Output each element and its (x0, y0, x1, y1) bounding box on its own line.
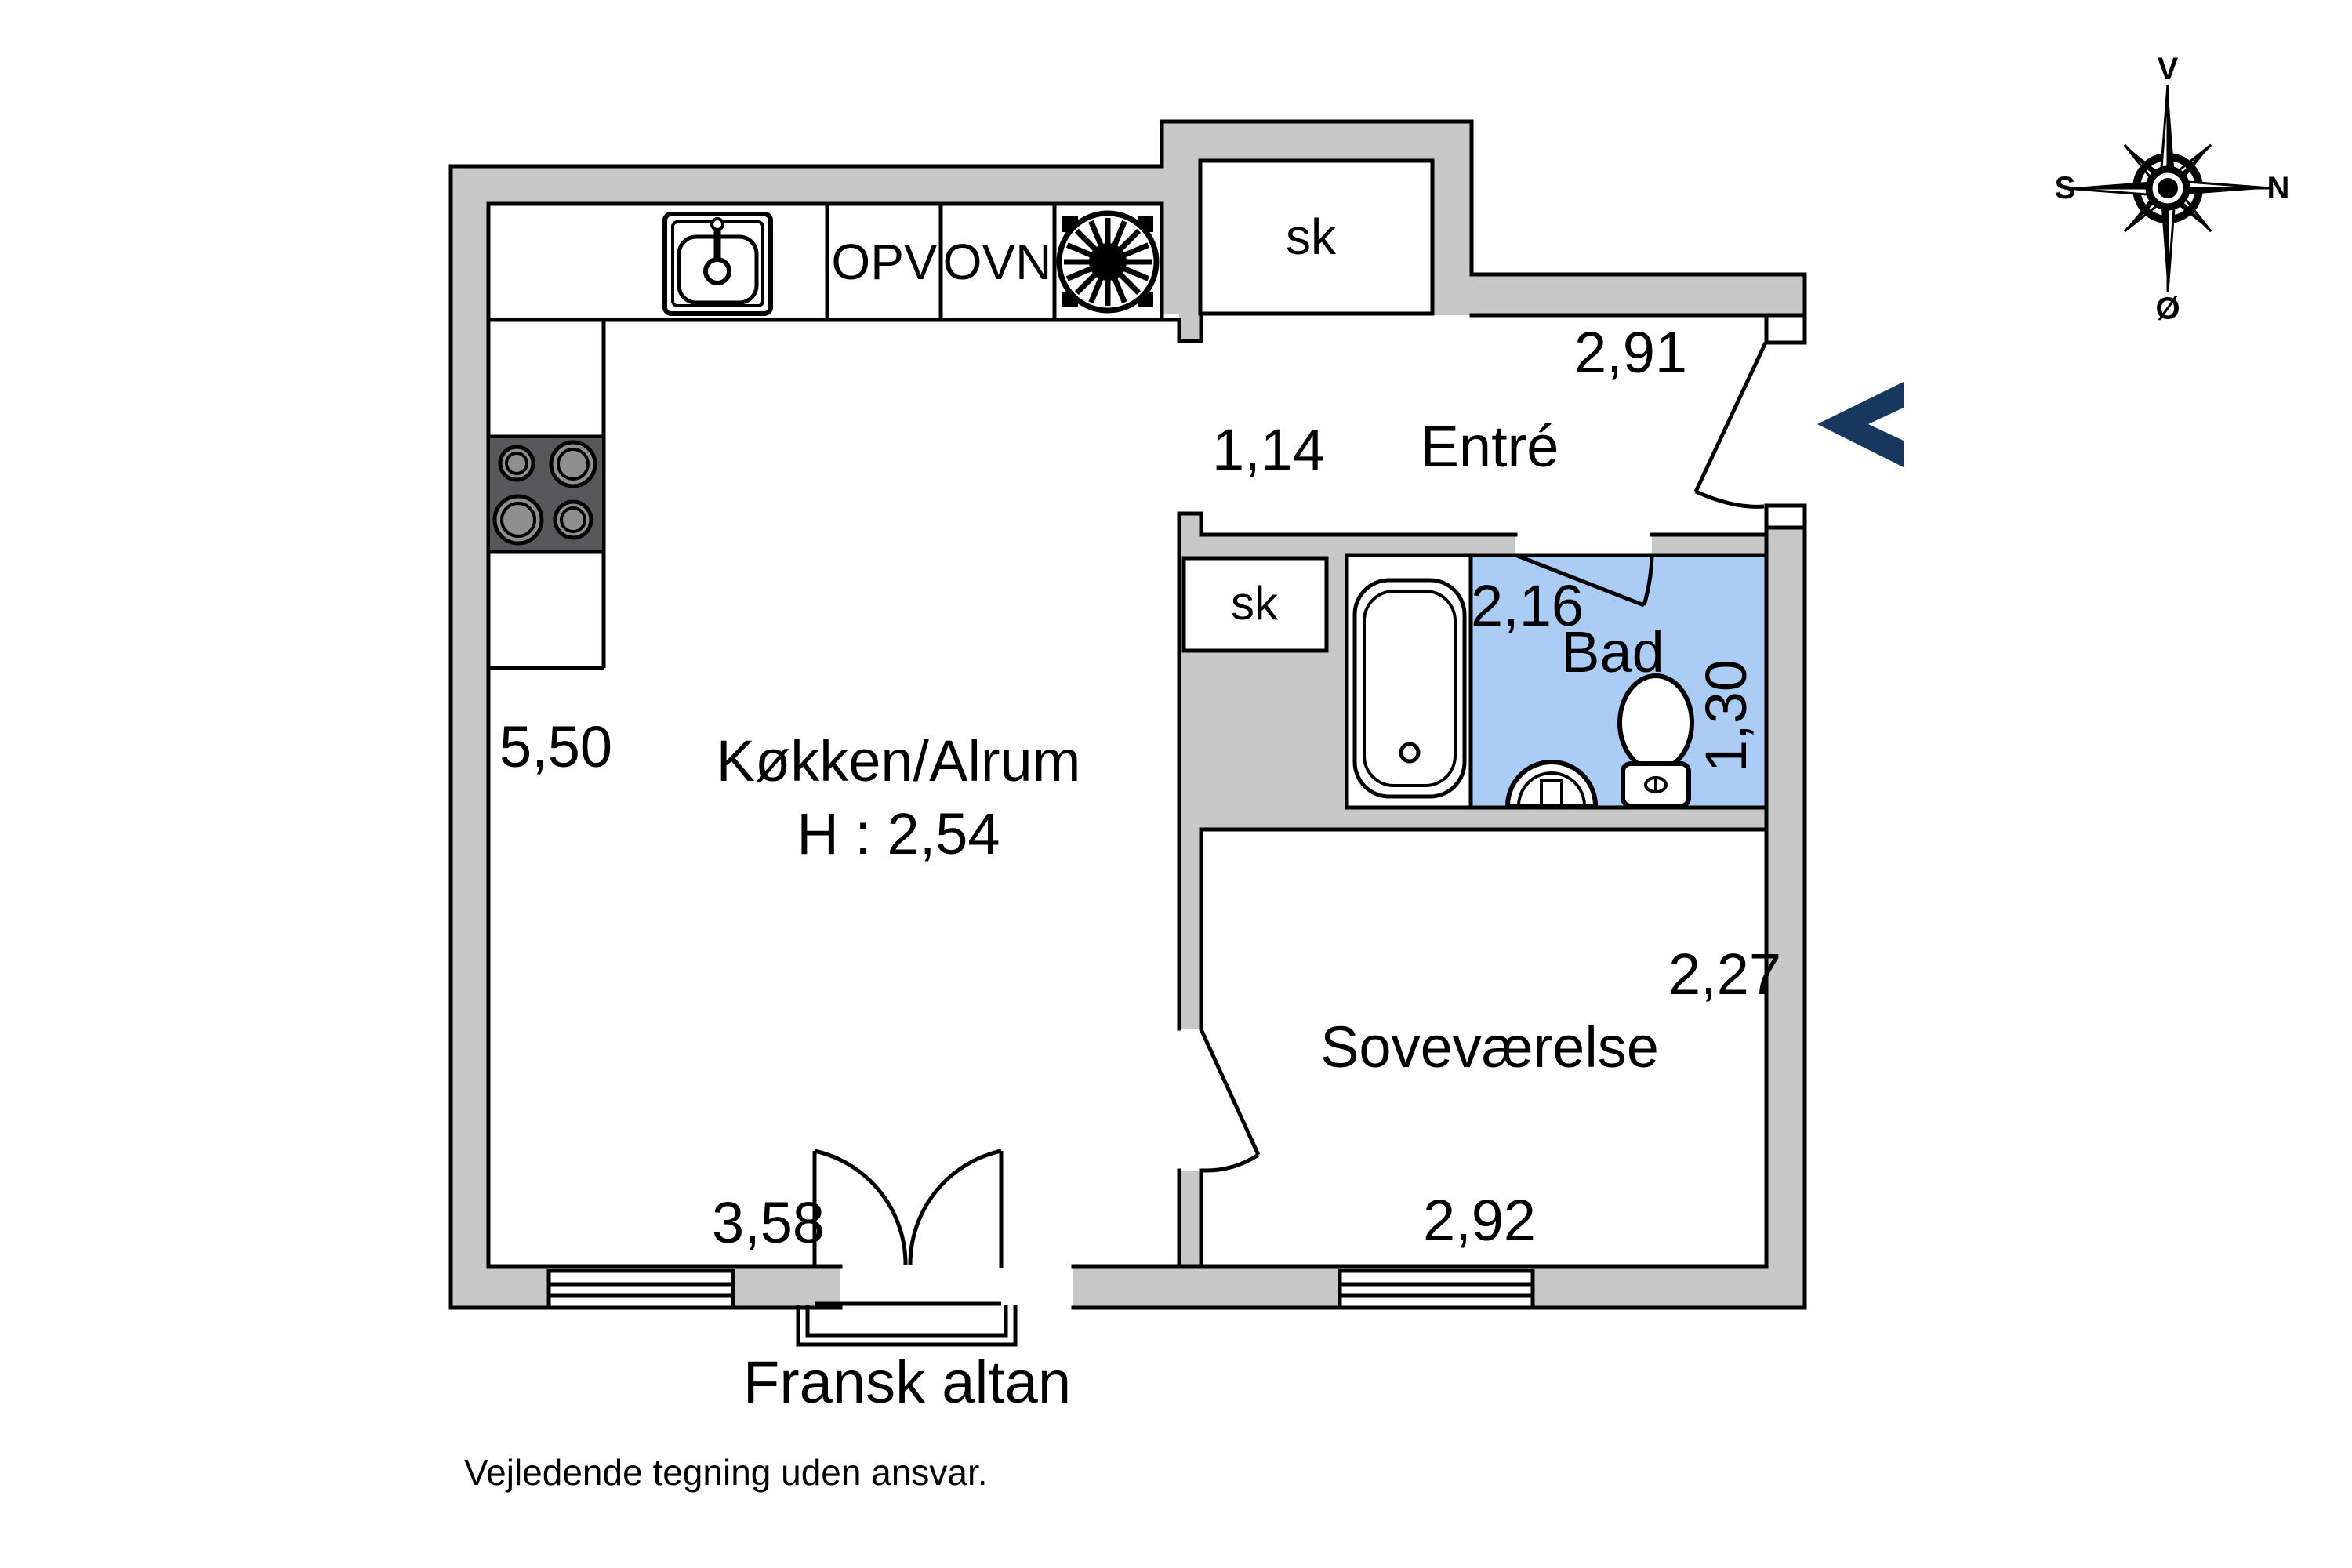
balcony-railing (798, 1305, 1015, 1345)
kitchen-ceiling-height-label: H : 2,54 (797, 805, 1000, 863)
kitchen-width-label: 5,50 (499, 718, 612, 776)
balcony-label: Fransk altan (743, 1353, 1071, 1413)
closet-hall-label: sk (1231, 580, 1278, 627)
compass-rose-icon (2064, 85, 2271, 292)
balcony-door (815, 1151, 1001, 1304)
compass-north-label: N (2267, 172, 2290, 204)
bedroom-depth-label: 2,27 (1668, 946, 1781, 1004)
bedroom-name-label: Soveværelse (1320, 1018, 1659, 1076)
compass-east-label: Ø (2155, 293, 2180, 325)
closet-top-label: sk (1286, 212, 1336, 262)
toilet-icon (1620, 676, 1692, 806)
compass-west-label: V (2158, 53, 2179, 85)
entry-name-label: Entré (1421, 418, 1559, 476)
entry-length-label: 2,91 (1574, 324, 1687, 382)
fan-icon (1059, 213, 1156, 310)
floor-plan: OPV OVN sk sk 1,14 Entré 2,91 2,16 Bad 1… (0, 0, 2352, 1568)
window-right (1340, 1271, 1533, 1308)
sink-icon (665, 214, 771, 314)
entry-width-label: 1,14 (1212, 421, 1325, 479)
bath-depth-label: 1,30 (1697, 659, 1755, 772)
entrance-door-jambs (1766, 315, 1805, 528)
entrance-arrow-icon (1817, 382, 1904, 467)
disclaimer-text: Vejledende tegning uden ansvar. (464, 1454, 988, 1490)
kitchen-length-label: 3,58 (712, 1194, 825, 1252)
dishwasher-label: OPV (831, 237, 937, 287)
window-left (549, 1271, 733, 1308)
floor-plan-drawing (0, 0, 2352, 1568)
oven-label: OVN (943, 237, 1052, 287)
stove-icon (488, 437, 604, 551)
bedroom-width-label: 2,92 (1423, 1192, 1536, 1250)
bath-name-label: Bad (1561, 623, 1664, 681)
compass-south-label: S (2055, 172, 2076, 204)
kitchen-name-label: Køkken/Alrum (717, 732, 1081, 790)
bathtub-icon (1355, 580, 1465, 797)
